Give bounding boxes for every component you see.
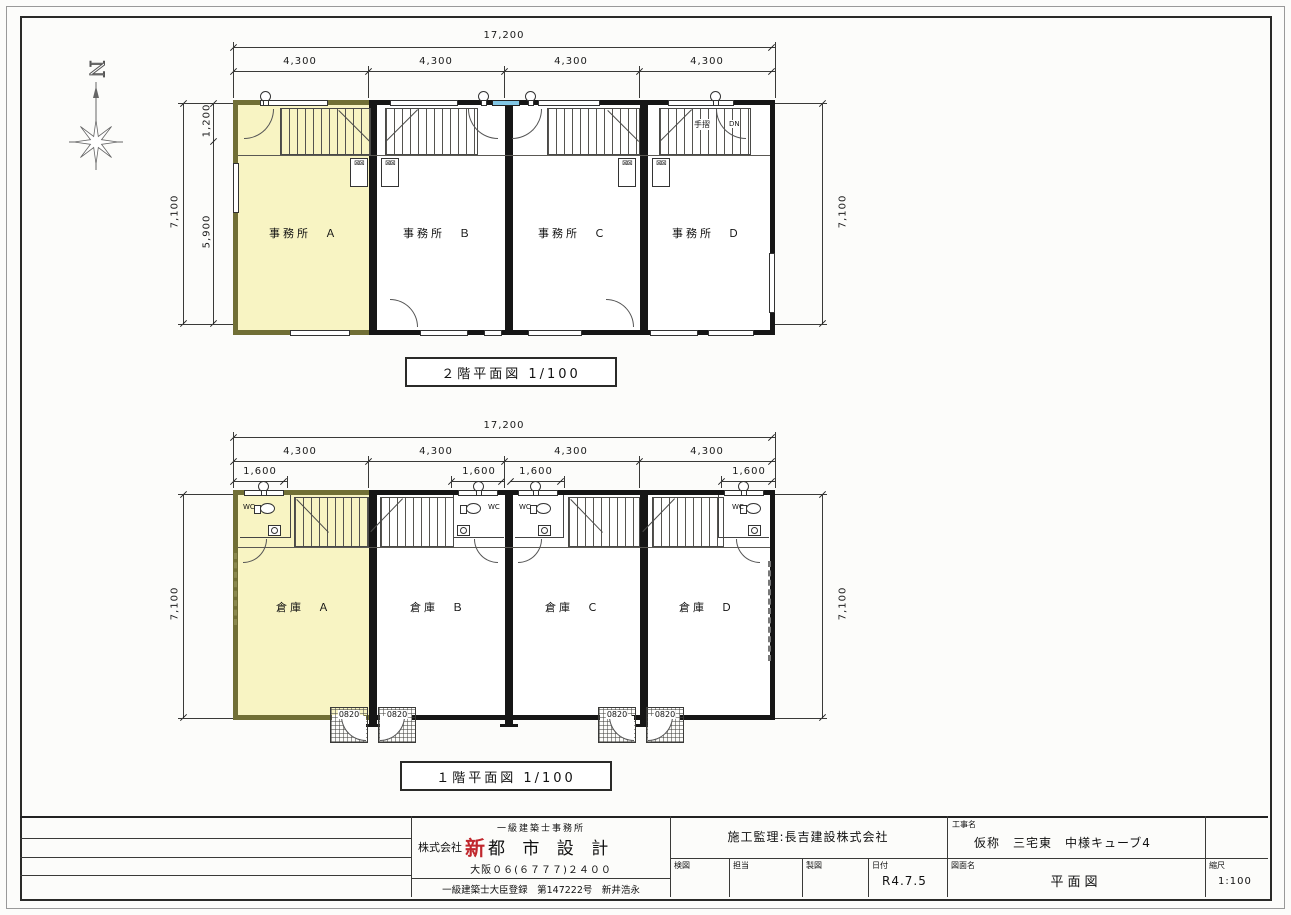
entry-stoop-a: 0820 bbox=[330, 707, 368, 743]
handrail-label: 手摺 bbox=[693, 119, 711, 130]
dashed-wall bbox=[768, 561, 771, 661]
room-label-office-b: 事務所 Ｂ bbox=[403, 225, 473, 241]
witness-line bbox=[178, 718, 233, 719]
dim-1f-bay: 4,300 bbox=[554, 446, 588, 457]
window bbox=[260, 100, 328, 106]
revision-row-line bbox=[20, 857, 411, 858]
north-compass-icon: N bbox=[66, 56, 130, 178]
company-prefix: 株式会社 bbox=[418, 839, 462, 855]
stair-2f-c bbox=[547, 108, 640, 155]
caption-2f-text: ２階平面図 1/100 bbox=[441, 363, 581, 382]
kitchenette-icon: ⊠⊠ bbox=[618, 158, 636, 187]
vent-icon bbox=[738, 481, 749, 492]
dim-1f-entry: 1,600 bbox=[462, 466, 496, 477]
witness-line bbox=[721, 476, 722, 488]
toilet-icon bbox=[536, 503, 551, 514]
stair-2f-b bbox=[385, 108, 478, 155]
date-value: R4.7.5 bbox=[882, 874, 927, 888]
door-arc bbox=[512, 109, 542, 139]
drawing-sheet: N 17,200 4,300 4,300 4,300 4,300 7,100 1… bbox=[0, 0, 1291, 915]
witness-line bbox=[639, 456, 640, 488]
kitchenette-icon: ⊠⊠ bbox=[350, 158, 368, 187]
wall-stub bbox=[500, 724, 518, 727]
dim-1f-entry: 1,600 bbox=[732, 466, 766, 477]
wc-label: WC bbox=[243, 503, 255, 511]
caption-1f: １階平面図 1/100 bbox=[400, 761, 612, 791]
witness-line bbox=[775, 432, 776, 488]
dim-1f-total: 17,200 bbox=[484, 420, 525, 431]
vent-icon bbox=[530, 481, 541, 492]
dim-2f-left-lower: 5,900 bbox=[201, 215, 212, 249]
room-label-warehouse-a: 倉庫 Ａ bbox=[276, 599, 332, 615]
door-arc bbox=[518, 539, 542, 563]
window bbox=[650, 330, 698, 336]
witness-line bbox=[775, 718, 827, 719]
revision-row-line bbox=[20, 838, 411, 839]
titleblock-divider bbox=[947, 816, 948, 897]
sheet-label: 図面名 bbox=[951, 860, 975, 871]
window bbox=[538, 100, 600, 106]
window bbox=[390, 100, 458, 106]
stair-1f-b bbox=[380, 497, 454, 547]
vent-icon bbox=[525, 91, 536, 102]
witness-line bbox=[233, 432, 234, 488]
sink-icon bbox=[268, 525, 281, 536]
draft-label: 製図 bbox=[806, 860, 822, 871]
witness-line bbox=[775, 494, 827, 495]
company-rest: 都 市 設 計 bbox=[488, 834, 614, 859]
witness-line bbox=[775, 324, 827, 325]
door-tag: 0820 bbox=[386, 710, 408, 719]
dim-2f-bay: 4,300 bbox=[419, 56, 453, 67]
witness-line bbox=[451, 476, 452, 488]
kitchenette-icon: ⊠⊠ bbox=[381, 158, 399, 187]
dim-2f-bay: 4,300 bbox=[283, 56, 317, 67]
room-label-warehouse-d: 倉庫 Ｄ bbox=[679, 599, 735, 615]
toilet-icon bbox=[260, 503, 275, 514]
window bbox=[668, 100, 734, 106]
witness-line bbox=[504, 456, 505, 488]
company-phone: 大阪０６(６７７７)２４００ bbox=[470, 861, 612, 876]
witness-line bbox=[178, 103, 233, 104]
vent-icon bbox=[473, 481, 484, 492]
scale-label: 縮尺 bbox=[1209, 860, 1225, 871]
vent-icon bbox=[478, 91, 489, 102]
door-tag: 0820 bbox=[606, 710, 628, 719]
stair-1f-d bbox=[652, 497, 724, 547]
witness-line bbox=[287, 476, 288, 488]
witness-line bbox=[178, 324, 233, 325]
door-tag: 0820 bbox=[654, 710, 676, 719]
dim-2f-left-outer: 7,100 bbox=[169, 195, 180, 229]
corridor-line bbox=[238, 155, 770, 156]
titleblock-top bbox=[20, 816, 1268, 818]
corridor-line bbox=[238, 547, 770, 548]
titleblock-divider bbox=[411, 816, 412, 897]
titleblock-row-divider bbox=[670, 858, 1268, 859]
dim-2f-left-upper: 1,200 bbox=[201, 104, 212, 138]
sink-icon bbox=[748, 525, 761, 536]
wc-room-a bbox=[240, 495, 291, 538]
titleblock-divider bbox=[1205, 816, 1206, 897]
party-wall bbox=[505, 495, 513, 725]
room-label-office-c: 事務所 Ｃ bbox=[538, 225, 608, 241]
dim-line bbox=[183, 494, 184, 718]
wc-label: WC bbox=[732, 503, 744, 511]
room-label-office-a: 事務所 Ａ bbox=[269, 225, 339, 241]
door-arc bbox=[474, 539, 498, 563]
kitchenette-icon: ⊠⊠ bbox=[652, 158, 670, 187]
window bbox=[528, 330, 582, 336]
witness-line bbox=[368, 456, 369, 488]
dim-2f-bay: 4,300 bbox=[690, 56, 724, 67]
wc-room-d bbox=[718, 495, 769, 538]
witness-line bbox=[775, 103, 827, 104]
dim-1f-entry: 1,600 bbox=[243, 466, 277, 477]
sink-icon bbox=[538, 525, 551, 536]
witness-line bbox=[504, 66, 505, 98]
party-wall bbox=[640, 105, 648, 330]
date-label: 日付 bbox=[872, 860, 888, 871]
wc-label: WC bbox=[488, 503, 500, 511]
window bbox=[708, 330, 754, 336]
company-name: 株式会社 新 都 市 設 計 bbox=[418, 832, 614, 861]
vent-icon bbox=[258, 481, 269, 492]
entry-stoop-b: 0820 bbox=[378, 707, 416, 743]
dim-1f-bay: 4,300 bbox=[283, 446, 317, 457]
room-label-warehouse-c: 倉庫 Ｃ bbox=[545, 599, 601, 615]
north-letter: N bbox=[85, 60, 109, 78]
vent-icon bbox=[710, 91, 721, 102]
witness-line bbox=[564, 476, 565, 488]
dim-line bbox=[822, 103, 823, 324]
door-tag: 0820 bbox=[338, 710, 360, 719]
wc-label: WC bbox=[519, 503, 531, 511]
titleblock-divider bbox=[729, 858, 730, 897]
project-label: 工事名 bbox=[952, 819, 976, 830]
titleblock-divider bbox=[868, 858, 869, 897]
door-arc bbox=[606, 299, 634, 327]
window bbox=[233, 163, 239, 213]
sink-icon bbox=[457, 525, 470, 536]
staff-label: 担当 bbox=[733, 860, 749, 871]
dim-line bbox=[822, 494, 823, 718]
blue-window bbox=[492, 100, 520, 106]
company-divider bbox=[411, 878, 670, 879]
dashed-wall bbox=[234, 553, 237, 625]
floor-plan-1f: WC WC WC WC 倉庫 Ａ 倉 bbox=[233, 490, 775, 720]
titleblock-divider bbox=[802, 858, 803, 897]
window bbox=[484, 330, 502, 336]
dim-line bbox=[233, 437, 775, 438]
dim-1f-bay: 4,300 bbox=[419, 446, 453, 457]
stair-1f-c bbox=[568, 497, 640, 547]
toilet-icon bbox=[466, 503, 481, 514]
dim-2f-total: 17,200 bbox=[484, 30, 525, 41]
floor-plan-2f: 手摺 DN ⊠⊠ ⊠⊠ ⊠⊠ ⊠⊠ 事務所 Ａ bbox=[233, 100, 775, 335]
window bbox=[290, 330, 350, 336]
window bbox=[769, 253, 775, 313]
entry-stoop-c: 0820 bbox=[598, 707, 636, 743]
project-name: 仮称 三宅東 中様キューブ4 bbox=[974, 834, 1151, 851]
scale-value: 1:100 bbox=[1218, 876, 1252, 887]
witness-line bbox=[775, 42, 776, 98]
entry-stoop-d: 0820 bbox=[646, 707, 684, 743]
company-accent: 新 bbox=[465, 832, 485, 861]
stair-2f-a bbox=[280, 108, 371, 155]
stair-1f-a bbox=[294, 497, 369, 547]
witness-line bbox=[368, 66, 369, 98]
caption-2f: ２階平面図 1/100 bbox=[405, 357, 617, 387]
check-label: 検図 bbox=[674, 860, 690, 871]
witness-line bbox=[639, 66, 640, 98]
dim-1f-left: 7,100 bbox=[169, 587, 180, 621]
dim-1f-bay: 4,300 bbox=[690, 446, 724, 457]
dim-line bbox=[213, 103, 214, 324]
dim-line bbox=[721, 481, 775, 482]
titleblock-divider bbox=[670, 816, 671, 897]
toilet-icon bbox=[746, 503, 761, 514]
registration: 一級建築士大臣登録 第147222号 新井浩永 bbox=[442, 882, 640, 896]
dim-line bbox=[233, 47, 775, 48]
room-label-office-d: 事務所 Ｄ bbox=[672, 225, 742, 241]
vent-icon bbox=[260, 91, 271, 102]
revision-row-line bbox=[20, 875, 411, 876]
dim-line bbox=[183, 103, 184, 324]
dim-2f-bay: 4,300 bbox=[554, 56, 588, 67]
supervision: 施工監理:長吉建設株式会社 bbox=[727, 828, 888, 845]
witness-line bbox=[233, 42, 234, 98]
window bbox=[420, 330, 468, 336]
room-label-warehouse-b: 倉庫 Ｂ bbox=[410, 599, 466, 615]
witness-line bbox=[178, 494, 233, 495]
door-arc bbox=[390, 299, 418, 327]
dim-2f-right: 7,100 bbox=[837, 195, 848, 229]
door-arc bbox=[736, 539, 760, 563]
sheet-name: 平面図 bbox=[1050, 871, 1101, 890]
dim-1f-right: 7,100 bbox=[837, 587, 848, 621]
caption-1f-text: １階平面図 1/100 bbox=[436, 767, 576, 786]
dim-1f-entry: 1,600 bbox=[519, 466, 553, 477]
